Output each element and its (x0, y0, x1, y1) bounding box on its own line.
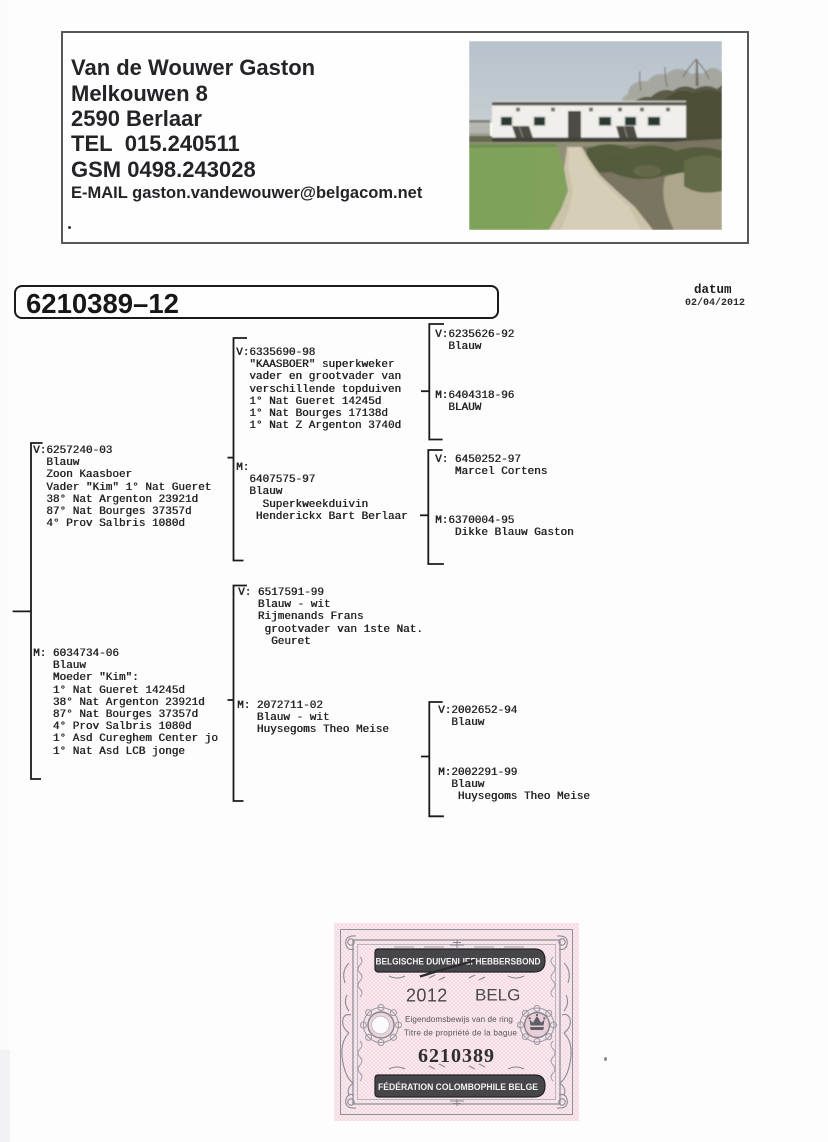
svg-text:6210389: 6210389 (418, 1045, 495, 1067)
svg-text:Eigendomsbewijs van de ring: Eigendomsbewijs van de ring (405, 1015, 513, 1024)
svg-text:Titre de propriété de la bague: Titre de propriété de la bague (404, 1029, 517, 1038)
svg-text:2012: 2012 (406, 986, 448, 1006)
svg-text:BELG: BELG (475, 986, 520, 1005)
svg-text:FÉDÉRATION COLOMBOPHILE BELGE: FÉDÉRATION COLOMBOPHILE BELGE (378, 1081, 539, 1093)
